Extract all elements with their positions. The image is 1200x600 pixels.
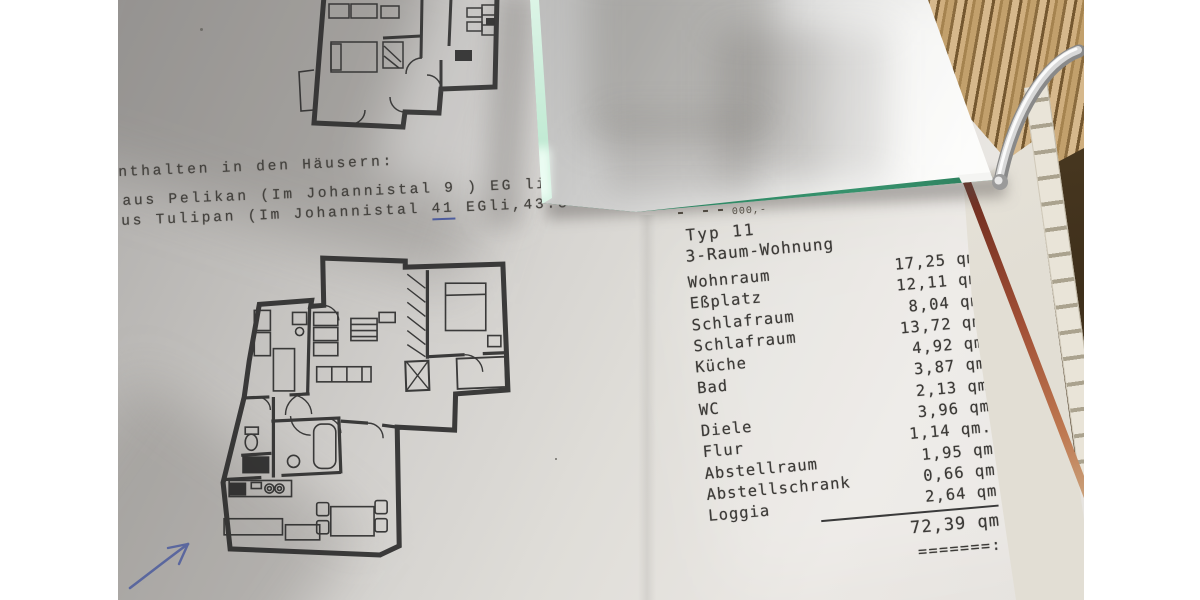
print-fragment-dash (703, 210, 708, 212)
floor-plan-top (291, 0, 513, 146)
pen-arrow-icon (126, 528, 206, 594)
obscured-print-fragment: 000,- (732, 205, 768, 218)
room-label: Bad (696, 377, 729, 401)
binder-photo: nthalten in den Häusern: aus Pelikan (Im… (118, 0, 1084, 600)
area-table: Typ 11 3-Raum-Wohnung Wohnraum17,25 qm E… (683, 200, 1013, 578)
card-shadow-blob (606, 115, 756, 195)
floor-plan-main (213, 250, 517, 562)
room-label: Loggia (708, 502, 772, 529)
paper-speck (200, 28, 203, 31)
screenshot-canvas: nthalten in den Häusern: aus Pelikan (Im… (0, 0, 1200, 600)
binder-ring-icon (975, 35, 1084, 195)
room-label: Diele (700, 418, 753, 444)
white-card (526, 0, 1006, 216)
page-seam (638, 215, 656, 600)
paper-speck (555, 458, 557, 460)
print-fragment-dash (678, 212, 683, 214)
room-label: Küche (695, 354, 748, 380)
room-label: WC (698, 399, 720, 422)
print-fragment-dash (718, 209, 723, 211)
pen-underlined-number: 41 (431, 201, 455, 221)
